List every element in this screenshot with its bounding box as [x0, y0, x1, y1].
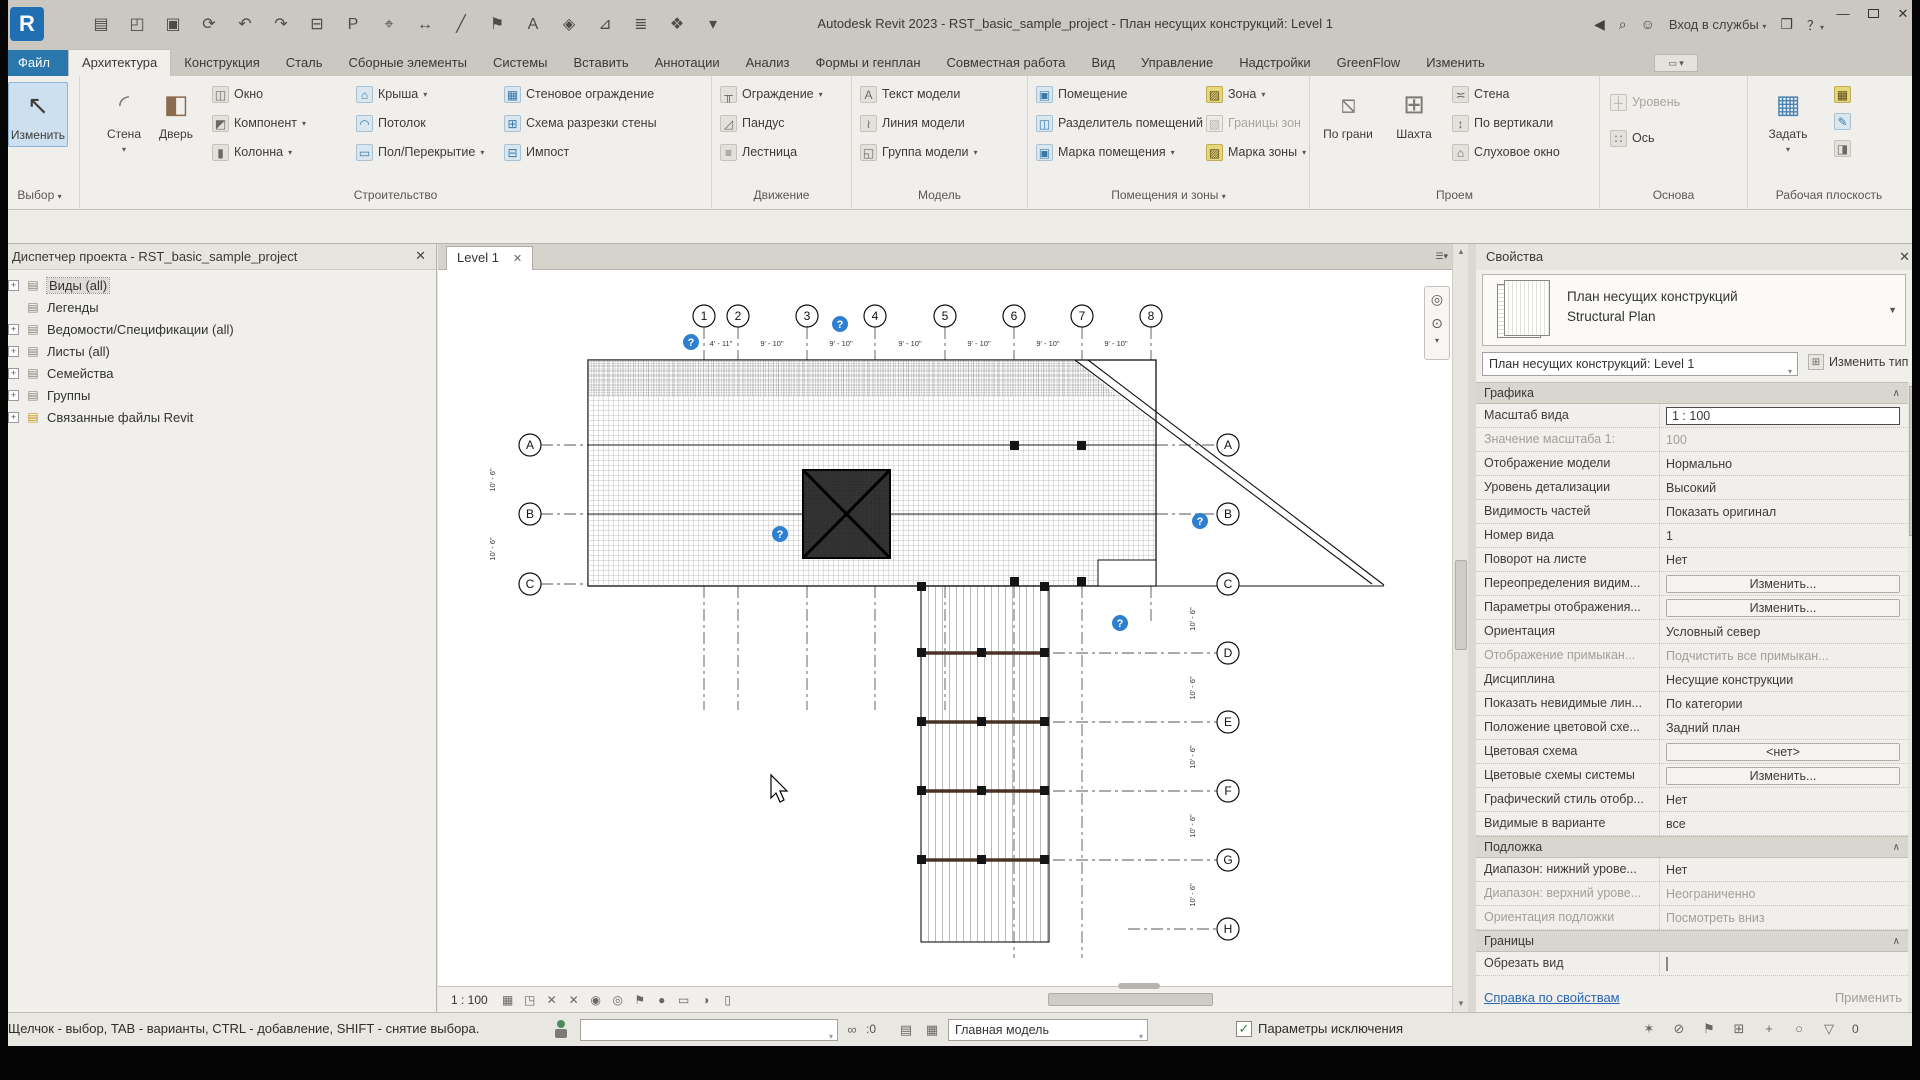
crop-view-checkbox[interactable] — [1666, 957, 1668, 971]
status-icon[interactable]: + — [1760, 1020, 1778, 1038]
ribbon-tab[interactable]: Конструкция — [171, 50, 272, 76]
window-controls: — ✕ — [1828, 0, 1918, 30]
area-button[interactable]: ▨Зона ▾ — [1206, 84, 1306, 104]
exclude-options-label: Параметры исключения — [1258, 1021, 1403, 1036]
svg-text:8: 8 — [1148, 309, 1155, 323]
grid-bubbles-top[interactable] — [693, 305, 1162, 327]
edit-type-button[interactable]: ⊞ Изменить тип — [1808, 354, 1908, 370]
model-group-button[interactable]: ◱Группа модели ▾ — [860, 142, 977, 162]
properties-help-link[interactable]: Справка по свойствам — [1484, 990, 1620, 1005]
room-tag-icon: ▣ — [1036, 144, 1053, 161]
screen-edge-right — [1912, 0, 1920, 1080]
browser-tree-item[interactable]: + ▤ Листы (all) — [0, 340, 436, 362]
set-workplane-button[interactable]: ▦ Задать▾ — [1758, 82, 1818, 155]
svg-text:6: 6 — [1011, 309, 1018, 323]
minimize-button[interactable]: — — [1828, 0, 1858, 30]
expander-icon[interactable]: + — [8, 412, 19, 423]
property-row: Уровень детализации Высокий — [1476, 476, 1908, 500]
property-row-crop: Обрезать вид — [1476, 952, 1908, 976]
area-tag-icon: ▨ — [1206, 144, 1223, 161]
area-boundary-icon: ▧ — [1206, 115, 1223, 132]
panel-datum: ┼Уровень ∷Ось Основа — [1600, 76, 1748, 208]
qat-icon[interactable]: ⊿ — [592, 14, 618, 36]
qat-icon[interactable]: ↷ — [268, 14, 294, 36]
horizontal-scrollbar-thumb[interactable] — [1048, 993, 1213, 1006]
opening-by-face-icon: ⧅ — [1328, 84, 1368, 124]
room-icon: ▣ — [1036, 86, 1053, 103]
svg-text:B: B — [1224, 507, 1232, 521]
railing-button[interactable]: ╥Ограждение ▾ — [720, 84, 823, 104]
structural-plan-view[interactable]: 12 34 56 78 4' - 11" 9' - 10"9' - 10" 9'… — [438, 270, 1452, 986]
project-browser-close-icon[interactable]: ✕ — [415, 248, 426, 264]
curtain-wall-icon: ▦ — [504, 86, 521, 103]
property-row: Ориентация Условный север — [1476, 620, 1908, 644]
panel-build: ◜ Стена▾ ◧ Дверь ◫Окно ◩Компонент ▾ ▮Кол… — [80, 76, 712, 208]
show-workplane-icon: ▦ — [1834, 86, 1851, 103]
status-right-icons: ✶⊘⚑⊞+○▽ — [1640, 1020, 1838, 1038]
element-selector-dropdown[interactable]: План несущих конструкций: Level 1▾ — [1482, 352, 1798, 376]
expander-icon[interactable]: + — [8, 346, 19, 357]
viewer-icon: ◨ — [1834, 140, 1851, 157]
beam-system[interactable] — [917, 586, 1049, 942]
view-control-icon[interactable]: ✕ — [543, 991, 561, 1009]
grid-button[interactable]: ∷Ось — [1610, 128, 1680, 148]
wall-button[interactable]: ◜ Стена▾ — [94, 82, 154, 155]
ribbon-tab[interactable]: Анализ — [733, 50, 803, 76]
qat-icon[interactable]: P — [340, 14, 366, 36]
browser-tree-item[interactable]: + ▤ Группы — [0, 384, 436, 406]
view-control-icon[interactable]: ⚑ — [631, 991, 649, 1009]
svg-text:10' - 6": 10' - 6" — [1188, 607, 1197, 631]
svg-text:?: ? — [1197, 516, 1204, 528]
svg-text:4: 4 — [872, 309, 879, 323]
navbar-expand-icon[interactable]: ▾ — [1425, 335, 1449, 351]
roof-icon: ⌂ — [356, 86, 373, 103]
wall-opening-icon: ≍ — [1452, 86, 1469, 103]
filter-count: 0 — [1852, 1022, 1859, 1036]
svg-text:H: H — [1224, 922, 1233, 936]
screen: R ▤◰▣⟳↶↷⊟P⌖↔╱⚑A◈⊿≣❖▾ Autodesk Revit 2023… — [0, 0, 1920, 1080]
panel-label-circulation: Движение — [712, 188, 851, 206]
view-control-icon[interactable]: ◳ — [521, 991, 539, 1009]
property-row: Видимые в варианте все — [1476, 812, 1908, 836]
qat-icon[interactable]: ⊟ — [304, 14, 330, 36]
svg-text:10' - 6": 10' - 6" — [1188, 814, 1197, 838]
ceiling-button[interactable]: ◠Потолок — [356, 113, 484, 133]
svg-text:D: D — [1224, 646, 1233, 660]
underlay-rows: Диапазон: нижний урове... Нет Диапазон: … — [1476, 858, 1908, 930]
properties-footer: Справка по свойствам Применить — [1476, 988, 1908, 1012]
view-control-icon[interactable]: ✕ — [565, 991, 583, 1009]
window-button[interactable]: ◫Окно — [212, 84, 306, 104]
properties-title: Свойства — [1476, 244, 1920, 270]
svg-text:F: F — [1224, 784, 1231, 798]
svg-text:9' - 10": 9' - 10" — [1104, 339, 1128, 348]
room-separator-button[interactable]: ◫Разделитель помещений — [1036, 113, 1203, 133]
panel-label-build: Строительство — [80, 188, 711, 206]
svg-text:?: ? — [1117, 618, 1124, 630]
view-control-icon[interactable]: ◑ — [697, 991, 715, 1009]
expander-icon[interactable]: + — [8, 324, 19, 335]
panel-label-opening: Проем — [1310, 188, 1599, 206]
ref-plane-button[interactable]: ✎ — [1834, 111, 1851, 131]
property-row: Графический стиль отобр... Нет — [1476, 788, 1908, 812]
design-options-icon[interactable]: ▤ — [896, 1020, 916, 1040]
svg-text:B: B — [526, 507, 534, 521]
property-row: Параметры отображения... Изменить... — [1476, 596, 1908, 620]
ceiling-icon: ◠ — [356, 115, 373, 132]
panel-label-datum: Основа — [1600, 188, 1747, 206]
panel-label-select[interactable]: Выбор ▾ — [0, 188, 79, 206]
user-icon: ☺ — [1641, 16, 1655, 32]
svg-text:10' - 6": 10' - 6" — [488, 537, 497, 561]
qat-icon[interactable]: A — [520, 14, 546, 36]
door-icon: ◧ — [156, 84, 196, 124]
tree-item-icon: ▤ — [25, 278, 41, 292]
qat-icon[interactable]: ❖ — [664, 14, 690, 36]
stair-button[interactable]: ≡Лестница — [720, 142, 823, 162]
search-icon[interactable]: ⌕ — [1619, 16, 1627, 33]
svg-text:1: 1 — [701, 309, 708, 323]
drawing-canvas[interactable]: Level 1✕ ☰▾ — [438, 244, 1452, 1012]
design-option-dropdown[interactable]: Главная модель▾ — [948, 1019, 1148, 1041]
mouse-cursor — [771, 775, 787, 802]
svg-text:A: A — [526, 438, 534, 452]
curtain-wall-button[interactable]: ▦Стеновое ограждение — [504, 84, 657, 104]
tree-item-icon: ▤ — [25, 388, 41, 402]
floor-button[interactable]: ▭Пол/Перекрытие ▾ — [356, 142, 484, 162]
browser-tree-item[interactable]: + ▤ Ведомости/Спецификации (all) — [0, 318, 436, 340]
expander-icon[interactable]: + — [8, 368, 19, 379]
property-row: Переопределения видим... Изменить... — [1476, 572, 1908, 596]
collapse-icon[interactable]: ∧ — [1893, 383, 1900, 404]
sign-in-button[interactable]: Вход в службы ▾ — [1669, 17, 1767, 32]
property-row: Масштаб вида 1 : 100 — [1476, 404, 1908, 428]
view-tab-level1[interactable]: Level 1✕ — [446, 246, 533, 270]
browser-tree-item[interactable]: + ▤ Связанные файлы Revit — [0, 406, 436, 428]
browser-tree-item[interactable]: ▤ Легенды — [0, 296, 436, 318]
property-row: Видимость частей Показать оригинал — [1476, 500, 1908, 524]
view-control-icon[interactable]: ▦ — [499, 991, 517, 1009]
property-row: Диапазон: нижний урове... Нет — [1476, 858, 1908, 882]
room-button[interactable]: ▣Помещение — [1036, 84, 1203, 104]
modify-button[interactable]: ↖ Изменить — [8, 82, 68, 147]
railing-icon: ╥ — [720, 86, 737, 103]
svg-text:9' - 10": 9' - 10" — [967, 339, 991, 348]
svg-text:10' - 6": 10' - 6" — [1188, 883, 1197, 907]
svg-text:9' - 10": 9' - 10" — [898, 339, 922, 348]
property-row: Показать невидимые лин... По категории — [1476, 692, 1908, 716]
selector-row: План несущих конструкций: Level 1▾ ⊞ Изм… — [1482, 352, 1914, 376]
panel-rooms: ▣Помещение ◫Разделитель помещений ▣Марка… — [1028, 76, 1310, 208]
link-icon: ∞ — [842, 1020, 862, 1040]
vertical-scrollbar-thumb[interactable] — [1455, 560, 1467, 650]
shaft-opening[interactable] — [803, 470, 890, 558]
property-row: Положение цветовой схе... Задний план — [1476, 716, 1908, 740]
property-row: Номер вида 1 — [1476, 524, 1908, 548]
svg-text:10' - 6": 10' - 6" — [1188, 676, 1197, 700]
ribbon-tab[interactable]: GreenFlow — [1324, 50, 1414, 76]
view-control-icon[interactable]: ▯ — [719, 991, 737, 1009]
scroll-up-icon[interactable]: ▲ — [1453, 244, 1469, 260]
qat-icon[interactable]: ↔ — [412, 14, 438, 36]
area-boundary-button: ▧Границы зон — [1206, 113, 1306, 133]
svg-text:2: 2 — [735, 309, 742, 323]
tree-item-icon: ▤ — [25, 366, 41, 380]
view-tab-list-icon[interactable]: ☰▾ — [1435, 251, 1448, 262]
area-icon: ▨ — [1206, 86, 1223, 103]
svg-text:G: G — [1223, 853, 1232, 867]
property-row: Поворот на листе Нет — [1476, 548, 1908, 572]
view-control-icon[interactable]: ● — [653, 991, 671, 1009]
dimension-strings-top: 4' - 11" 9' - 10"9' - 10" 9' - 10"9' - 1… — [710, 339, 1128, 348]
curtain-grid-icon: ⊞ — [504, 115, 521, 132]
restore-button[interactable] — [1858, 0, 1888, 30]
expander-icon[interactable]: + — [8, 390, 19, 401]
quick-access-toolbar: ▤◰▣⟳↶↷⊟P⌖↔╱⚑A◈⊿≣❖▾ — [88, 14, 726, 36]
property-row: Дисциплина Несущие конструкции — [1476, 668, 1908, 692]
shaft-icon: ⊞ — [1394, 84, 1434, 124]
navigation-bar: ◎ ⊙ ▾ — [1424, 286, 1450, 360]
status-icon[interactable]: ⊘ — [1670, 1020, 1688, 1038]
section-extents[interactable]: Границы∧ — [1476, 930, 1908, 952]
show-workplane-button[interactable]: ▦ — [1834, 84, 1851, 104]
vertical-opening-button[interactable]: ↕По вертикали — [1452, 113, 1560, 133]
ribbon-tab-bar: ФайлАрхитектураКонструкцияСтальСборные э… — [0, 48, 1920, 76]
svg-text:7: 7 — [1079, 309, 1086, 323]
qat-icon[interactable]: ▤ — [88, 14, 114, 36]
ribbon: ↖ Изменить Выбор ▾ ◜ Стена▾ ◧ Дверь ◫Окн… — [0, 76, 1920, 210]
qat-icon[interactable]: ≣ — [628, 14, 654, 36]
qat-icon[interactable]: ↶ — [232, 14, 258, 36]
tree-item-icon: ▤ — [25, 322, 41, 336]
curtain-grid-button[interactable]: ⊞Схема разрезки стены — [504, 113, 657, 133]
project-browser-tree: + ▤ Виды (all) ▤ Легенды + ▤ Ведомости/С… — [0, 270, 436, 428]
opening-by-face-button[interactable]: ⧅ По грани — [1318, 82, 1378, 141]
properties-palette: Свойства ✕ План несущих конструкций Stru… — [1476, 244, 1920, 1012]
section-underlay[interactable]: Подложка∧ — [1476, 836, 1908, 858]
mullion-icon: ⊟ — [504, 144, 521, 161]
property-row: Цветовая схема <нет> — [1476, 740, 1908, 764]
mullion-button[interactable]: ⊟Импост — [504, 142, 657, 162]
graphics-rows: Масштаб вида 1 : 100 Значение масштаба 1… — [1476, 404, 1908, 836]
workset-dropdown[interactable]: ▾ — [580, 1019, 838, 1041]
wall-opening-button[interactable]: ≍Стена — [1452, 84, 1560, 104]
model-group-icon: ◱ — [860, 144, 877, 161]
grid-bubble-labels-left: A B C — [526, 438, 535, 591]
expander-icon[interactable]: + — [8, 280, 19, 291]
app-store-icon[interactable]: ❒ — [1780, 16, 1793, 33]
status-icon[interactable]: ✶ — [1640, 1020, 1658, 1038]
view-control-icons: ▦◳✕✕◉◎⚑●▭◑▯ — [499, 991, 737, 1009]
qat-icon[interactable]: ▾ — [700, 14, 726, 36]
worksharing-icon — [552, 1020, 570, 1038]
svg-text:10' - 6": 10' - 6" — [1188, 745, 1197, 769]
dormer-button[interactable]: ⌂Слуховое окно — [1452, 142, 1560, 162]
svg-text:A: A — [1224, 438, 1232, 452]
tree-item-icon: ▤ — [25, 300, 41, 314]
qat-icon[interactable]: ▣ — [160, 14, 186, 36]
panel-label-rooms[interactable]: Помещения и зоны ▾ — [1028, 188, 1309, 206]
property-row: Отображение модели Нормально — [1476, 452, 1908, 476]
svg-text:9' - 10": 9' - 10" — [1036, 339, 1060, 348]
column-icon: ▮ — [212, 144, 229, 161]
vertical-opening-icon: ↕ — [1452, 115, 1469, 132]
collapse-icon[interactable]: ∧ — [1893, 837, 1900, 858]
set-workplane-icon: ▦ — [1768, 84, 1808, 124]
type-selector-card[interactable]: План несущих конструкций Structural Plan… — [1482, 274, 1906, 346]
view-tab-bar: Level 1✕ ☰▾ — [438, 244, 1452, 270]
editable-count: :0 — [866, 1022, 876, 1036]
ref-plane-icon: ✎ — [1834, 113, 1851, 130]
help-button[interactable]: ？▾ — [1807, 15, 1824, 34]
vertical-scrollbar[interactable]: ▲ ▼ — [1452, 244, 1468, 1012]
area-tag-button[interactable]: ▨Марка зоны ▾ — [1206, 142, 1306, 162]
ribbon-tab[interactable]: Файл — [0, 50, 68, 76]
level-button: ┼Уровень — [1610, 92, 1680, 112]
panel-circulation: ╥Ограждение ▾ ◿Пандус ≡Лестница Движение — [712, 76, 852, 208]
ribbon-tab[interactable]: Сталь — [273, 50, 336, 76]
apply-button[interactable]: Применить — [1835, 990, 1902, 1005]
ribbon-tab[interactable]: Совместная работа — [934, 50, 1079, 76]
qat-icon[interactable]: ⌖ — [376, 14, 402, 36]
view-control-icon[interactable]: ◎ — [609, 991, 627, 1009]
model-text-icon: A — [860, 86, 877, 103]
ribbon-tab[interactable]: Вид — [1078, 50, 1128, 76]
wall-icon: ◜ — [104, 84, 144, 124]
dimension-strings-right: 10' - 6" 10' - 6" 10' - 6" 10' - 6" 10' … — [1188, 607, 1197, 907]
view-control-icon[interactable]: ▭ — [675, 991, 693, 1009]
screen-edge-left — [0, 0, 8, 1080]
roof-button[interactable]: ⌂Крыша ▾ — [356, 84, 484, 104]
ribbon-tab[interactable]: Архитектура — [68, 49, 171, 76]
ribbon-tab[interactable]: Аннотации — [642, 50, 733, 76]
panel-label-model: Модель — [852, 188, 1027, 206]
browser-tree-item[interactable]: + ▤ Виды (all) — [0, 274, 436, 296]
property-row: Цветовые схемы системы Изменить... — [1476, 764, 1908, 788]
section-graphics[interactable]: Графика∧ — [1476, 382, 1908, 404]
back-icon[interactable]: ◀ — [1594, 16, 1605, 33]
ribbon-tab[interactable]: Системы — [480, 50, 560, 76]
titlebar-right-cluster: ◀ ⌕ ☺ Вход в службы ▾ ❒ ？▾ — [1594, 0, 1824, 48]
svg-text:C: C — [1224, 577, 1233, 591]
panel-model: AТекст модели ≀Линия модели ◱Группа моде… — [852, 76, 1028, 208]
property-row: Отображение примыкан... Подчистить все п… — [1476, 644, 1908, 668]
floor-icon: ▭ — [356, 144, 373, 161]
ribbon-tab[interactable]: Вставить — [561, 50, 642, 76]
panel-workplane: ▦ Задать▾ ▦ ✎ ◨ Рабочая плоскость — [1748, 76, 1910, 208]
door-button[interactable]: ◧ Дверь — [146, 82, 206, 141]
plan-drawing[interactable]: 12 34 56 78 4' - 11" 9' - 10"9' - 10" 9'… — [438, 270, 1452, 986]
viewer-button[interactable]: ◨ — [1834, 138, 1851, 158]
status-icon[interactable]: ⚑ — [1700, 1020, 1718, 1038]
tree-item-icon: ▤ — [25, 344, 41, 358]
project-browser: Диспетчер проекта - RST_basic_sample_pro… — [0, 244, 437, 1012]
ramp-button[interactable]: ◿Пандус — [720, 113, 823, 133]
panel-label-workplane: Рабочая плоскость — [1748, 188, 1910, 206]
ribbon-display-toggle[interactable]: ▭ ▾ — [1654, 54, 1698, 72]
dimension-strings-left: 10' - 6" 10' - 6" — [488, 468, 497, 561]
view-scale-button[interactable]: 1 : 100 — [446, 992, 493, 1008]
properties-close-icon[interactable]: ✕ — [1899, 249, 1910, 265]
svg-text:9' - 10": 9' - 10" — [760, 339, 784, 348]
level-icon: ┼ — [1610, 94, 1627, 111]
svg-text:10' - 6": 10' - 6" — [488, 468, 497, 492]
ramp-icon: ◿ — [720, 115, 737, 132]
stair-icon: ≡ — [720, 144, 737, 161]
project-browser-title: Диспетчер проекта - RST_basic_sample_pro… — [0, 244, 436, 270]
scroll-down-icon[interactable]: ▼ — [1453, 996, 1469, 1012]
svg-text:9' - 10": 9' - 10" — [829, 339, 853, 348]
view-splitter-handle[interactable] — [1118, 983, 1160, 989]
exclude-options-checkbox[interactable]: ✓ — [1236, 1021, 1252, 1037]
status-icon[interactable]: ▽ — [1820, 1020, 1838, 1038]
options-bar — [0, 210, 1920, 244]
model-line-icon: ≀ — [860, 115, 877, 132]
ribbon-tab[interactable]: Формы и генплан — [802, 50, 933, 76]
svg-text:5: 5 — [942, 309, 949, 323]
main-model-icon[interactable]: ▦ — [922, 1020, 942, 1040]
ribbon-tab[interactable]: Сборные элементы — [336, 50, 480, 76]
qat-icon[interactable]: ⟳ — [196, 14, 222, 36]
shaft-button[interactable]: ⊞ Шахта — [1384, 82, 1444, 141]
column-button[interactable]: ▮Колонна ▾ — [212, 142, 306, 162]
collapse-icon[interactable]: ∧ — [1893, 931, 1900, 952]
ribbon-tab[interactable]: Изменить — [1413, 50, 1498, 76]
title-bar: R ▤◰▣⟳↶↷⊟P⌖↔╱⚑A◈⊿≣❖▾ Autodesk Revit 2023… — [0, 0, 1920, 48]
ribbon-tab[interactable]: Надстройки — [1226, 50, 1323, 76]
status-icon[interactable]: ⊞ — [1730, 1020, 1748, 1038]
svg-text:?: ? — [777, 529, 784, 541]
revit-logo-icon[interactable]: R — [10, 7, 44, 41]
type-selector-caret-icon[interactable]: ▼ — [1888, 305, 1897, 315]
panel-resize-gutter[interactable] — [1468, 244, 1476, 1012]
property-row: Ориентация подложки Посмотреть вниз — [1476, 906, 1908, 930]
dormer-icon: ⌂ — [1452, 144, 1469, 161]
qat-icon[interactable]: ◈ — [556, 14, 582, 36]
room-separator-icon: ◫ — [1036, 115, 1053, 132]
room-tag-button[interactable]: ▣Марка помещения ▾ — [1036, 142, 1203, 162]
svg-text:3: 3 — [804, 309, 811, 323]
svg-text:?: ? — [837, 319, 844, 331]
model-text-button[interactable]: AТекст модели — [860, 84, 977, 104]
browser-tree-item[interactable]: + ▤ Семейства — [0, 362, 436, 384]
ribbon-tab[interactable]: Управление — [1128, 50, 1226, 76]
property-row: Значение масштаба 1: 100 — [1476, 428, 1908, 452]
svg-text:C: C — [526, 577, 535, 591]
window-icon: ◫ — [212, 86, 229, 103]
qat-icon[interactable]: ⚑ — [484, 14, 510, 36]
view-control-icon[interactable]: ◉ — [587, 991, 605, 1009]
window-title: Autodesk Revit 2023 - RST_basic_sample_p… — [817, 0, 1333, 48]
status-hint: Щелчок - выбор, TAB - варианты, CTRL - д… — [8, 1021, 479, 1036]
zoom-icon[interactable]: ⊙ — [1425, 311, 1449, 335]
component-button[interactable]: ◩Компонент ▾ — [212, 113, 306, 133]
qat-icon[interactable]: ╱ — [448, 14, 474, 36]
properties-grid: Графика∧ Масштаб вида 1 : 100 Значение м… — [1476, 382, 1908, 976]
status-icon[interactable]: ○ — [1790, 1020, 1808, 1038]
panel-opening: ⧅ По грани ⊞ Шахта ≍Стена ↕По вертикали … — [1310, 76, 1600, 208]
steering-wheel-icon[interactable]: ◎ — [1425, 287, 1449, 311]
model-line-button[interactable]: ≀Линия модели — [860, 113, 977, 133]
screen-edge-bottom — [0, 1046, 1920, 1080]
qat-icon[interactable]: ◰ — [124, 14, 150, 36]
revit-window: R ▤◰▣⟳↶↷⊟P⌖↔╱⚑A◈⊿≣❖▾ Autodesk Revit 2023… — [0, 0, 1920, 1046]
grid-icon: ∷ — [1610, 130, 1627, 147]
panel-select: ↖ Изменить Выбор ▾ — [0, 76, 80, 208]
svg-text:4' - 11": 4' - 11" — [710, 339, 733, 348]
view-tab-close-icon[interactable]: ✕ — [513, 253, 522, 265]
